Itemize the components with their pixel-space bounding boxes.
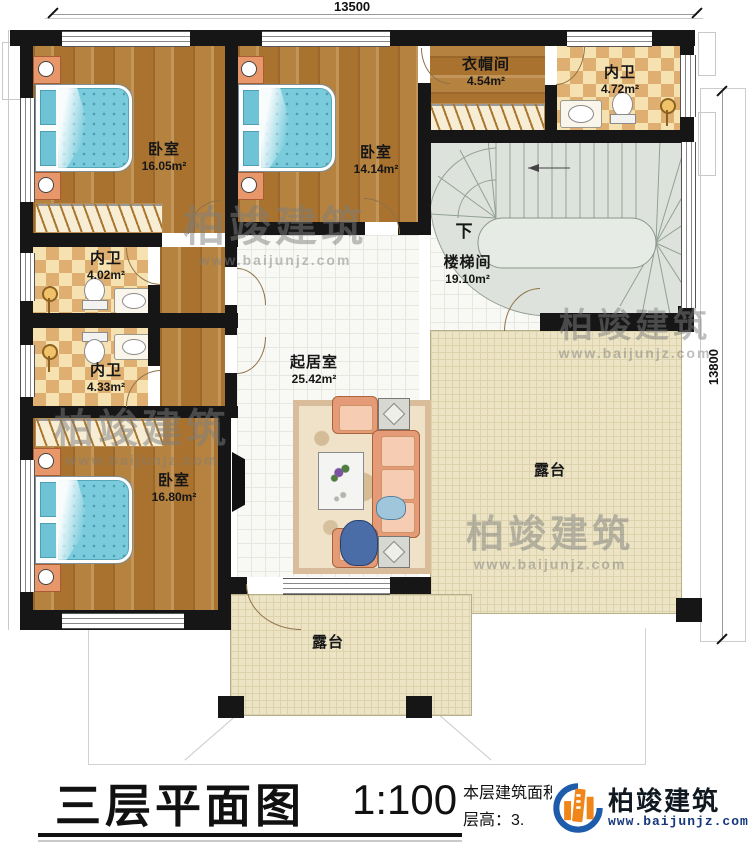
window [20, 460, 35, 592]
window [62, 31, 190, 47]
title-block: 三层平面图 1:100 本层建筑面积： 层高：3. 柏竣建筑 www.baiju… [0, 770, 750, 843]
bed-icon [35, 476, 133, 564]
label-bath-low: 内卫4.33m² [70, 362, 142, 394]
shower-icon [42, 344, 58, 360]
logo-icon [552, 782, 604, 834]
eave-line [45, 18, 703, 19]
toilet-icon [610, 92, 634, 124]
label-terrace-bottom: 露台 [298, 634, 358, 652]
stair-direction-label: 下 [452, 222, 476, 242]
label-bedroom3: 卧室16.80m² [128, 472, 220, 504]
toilet-icon [82, 278, 106, 310]
title-underline [38, 833, 462, 837]
label-bedroom1: 卧室16.05m² [118, 141, 210, 173]
dimension-tick [47, 7, 58, 18]
label-cloakroom: 衣帽间4.54m² [440, 56, 532, 88]
wall-living-south [390, 577, 431, 594]
window [20, 253, 35, 301]
shower-icon [660, 98, 676, 114]
toilet-icon [82, 332, 106, 364]
bed-icon [238, 84, 336, 172]
label-living: 起居室25.42m² [268, 354, 360, 386]
drawing-scale: 1:100 [352, 776, 457, 824]
coffee-table [318, 452, 364, 510]
drawing-title: 三层平面图 [55, 770, 305, 836]
nightstand-icon [33, 448, 61, 476]
closet-icon [35, 418, 164, 447]
person-icon [340, 520, 378, 566]
wall-bedroom-divider [225, 30, 238, 247]
sink-icon [560, 100, 602, 128]
person-icon [376, 496, 406, 520]
armchair-icon [332, 396, 378, 434]
tv-icon [232, 452, 245, 512]
window [262, 31, 390, 47]
dimension-tick [691, 7, 702, 18]
window [20, 345, 35, 397]
sofa-icon [372, 430, 420, 538]
wall-living-south [225, 577, 247, 594]
label-stairwell: 楼梯间19.10m² [420, 254, 515, 286]
window [680, 55, 696, 117]
wall-vestibule-east [225, 247, 237, 267]
eave-box [698, 32, 716, 76]
window [567, 31, 652, 47]
label-terrace-right: 露台 [520, 462, 580, 480]
nightstand-icon [33, 172, 61, 200]
eave-line [8, 30, 9, 630]
wall-stairwell-south [540, 313, 692, 331]
wall-bath-east [148, 285, 160, 313]
wall-bedroom3-east [218, 406, 231, 630]
dimension-top-value: 13500 [330, 0, 374, 14]
side-table-icon [378, 536, 410, 568]
column [218, 696, 244, 718]
column [676, 598, 702, 622]
wall-bedroom1-south [20, 233, 162, 247]
dimension-right-value: 13800 [706, 345, 721, 389]
title-underline [38, 840, 462, 842]
label-bath-mid: 内卫4.02m² [70, 250, 142, 282]
column [406, 696, 432, 718]
side-table-icon [378, 398, 410, 430]
company-logo: 柏竣建筑 www.baijunjz.com [552, 782, 749, 834]
shower-icon [42, 286, 58, 302]
wall-cloakroom-south [425, 130, 693, 143]
window-stairwell [681, 142, 696, 308]
closet-icon [35, 203, 163, 233]
nightstand-icon [33, 56, 61, 84]
wall-bath-east [148, 328, 160, 366]
window [20, 98, 35, 202]
wall-bathlow-south [20, 406, 238, 418]
closet-icon [428, 103, 545, 131]
floor-plan: 13500 13800 [0, 0, 750, 843]
dimension-line-top [52, 14, 697, 15]
wall-bath-divider [20, 313, 238, 328]
nightstand-icon [236, 172, 264, 200]
nightstand-icon [33, 564, 61, 592]
window [62, 613, 184, 629]
logo-text: 柏竣建筑 www.baijunjz.com [608, 788, 749, 829]
wall-cloakroom-bath [545, 85, 557, 143]
wall-bedroom2-south [237, 222, 365, 235]
label-bath-top: 内卫4.72m² [580, 64, 660, 96]
label-bedroom2: 卧室14.14m² [330, 144, 422, 176]
nightstand-icon [236, 56, 264, 84]
